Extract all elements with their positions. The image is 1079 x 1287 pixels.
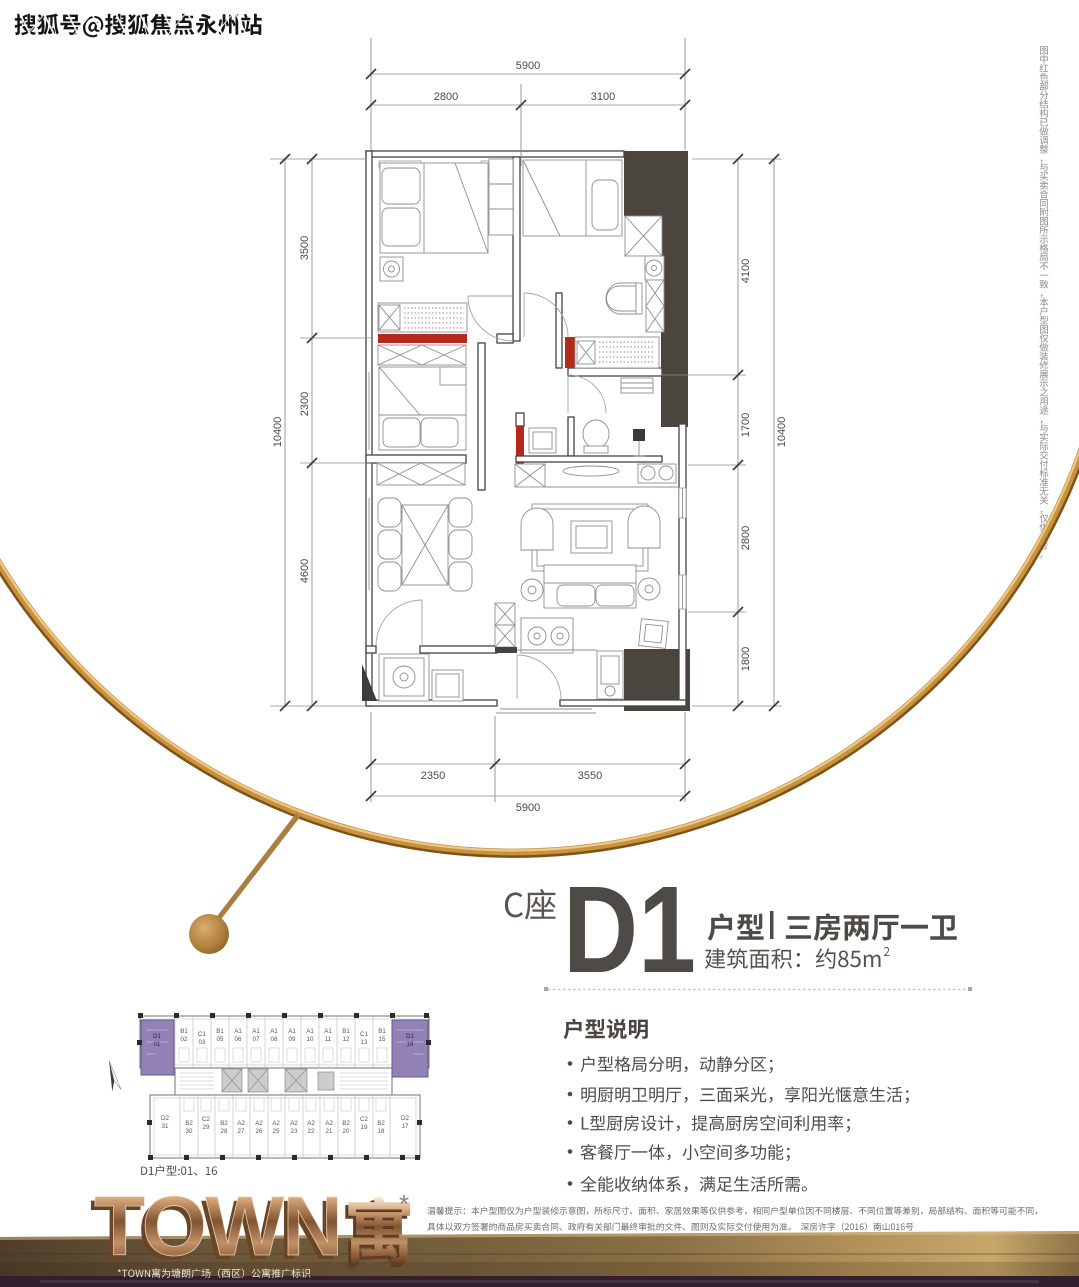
svg-text:*: * <box>399 1189 409 1219</box>
svg-text:B1: B1 <box>378 1028 386 1035</box>
svg-text:10400: 10400 <box>776 417 788 448</box>
svg-text:18: 18 <box>378 1128 385 1135</box>
svg-text:C1: C1 <box>360 1031 368 1038</box>
svg-text:B1: B1 <box>342 1028 350 1035</box>
svg-text:03: 03 <box>199 1039 206 1046</box>
svg-text:17: 17 <box>402 1123 409 1130</box>
svg-text:28: 28 <box>221 1128 228 1135</box>
svg-text:30: 30 <box>186 1128 193 1135</box>
svg-text:C2: C2 <box>360 1116 368 1123</box>
svg-text:B1: B1 <box>180 1028 188 1035</box>
svg-text:12: 12 <box>343 1036 350 1043</box>
svg-text:29: 29 <box>203 1124 210 1131</box>
svg-text:21: 21 <box>326 1128 333 1135</box>
svg-text:A2: A2 <box>272 1120 280 1127</box>
svg-text:B2: B2 <box>342 1120 350 1127</box>
svg-text:4100: 4100 <box>740 259 752 283</box>
svg-text:D2: D2 <box>161 1115 169 1122</box>
svg-text:05: 05 <box>217 1036 224 1043</box>
svg-text:02: 02 <box>181 1036 188 1043</box>
svg-text:19: 19 <box>361 1124 368 1131</box>
svg-text:09: 09 <box>289 1036 296 1043</box>
svg-text:D1: D1 <box>153 1033 161 1040</box>
svg-text:25: 25 <box>273 1128 280 1135</box>
svg-text:A1: A1 <box>288 1028 296 1035</box>
svg-text:20: 20 <box>343 1128 350 1135</box>
svg-text:D2: D2 <box>401 1115 409 1122</box>
svg-text:3550: 3550 <box>578 770 602 782</box>
svg-text:10400: 10400 <box>272 417 284 448</box>
svg-text:3100: 3100 <box>591 91 615 103</box>
svg-text:A2: A2 <box>325 1120 333 1127</box>
svg-text:D1: D1 <box>406 1033 414 1040</box>
svg-text:TOWN: TOWN <box>94 1179 341 1273</box>
svg-text:2800: 2800 <box>434 91 458 103</box>
svg-text:A1: A1 <box>252 1028 260 1035</box>
svg-text:13: 13 <box>361 1039 368 1046</box>
svg-text:31: 31 <box>162 1123 169 1130</box>
svg-text:B2: B2 <box>377 1120 385 1127</box>
svg-text:23: 23 <box>291 1128 298 1135</box>
svg-text:07: 07 <box>253 1036 260 1043</box>
svg-text:D1: D1 <box>563 862 696 999</box>
svg-text:B1: B1 <box>216 1028 224 1035</box>
svg-text:5900: 5900 <box>516 802 540 814</box>
svg-text:1800: 1800 <box>740 647 752 671</box>
svg-text:26: 26 <box>256 1128 263 1135</box>
svg-text:16: 16 <box>407 1041 414 1048</box>
svg-text:A1: A1 <box>234 1028 242 1035</box>
svg-text:A1: A1 <box>270 1028 278 1035</box>
svg-text:08: 08 <box>271 1036 278 1043</box>
svg-text:A2: A2 <box>237 1120 245 1127</box>
svg-text:A1: A1 <box>306 1028 314 1035</box>
svg-text:2800: 2800 <box>740 526 752 550</box>
svg-text:22: 22 <box>308 1128 315 1135</box>
svg-text:C2: C2 <box>202 1116 210 1123</box>
svg-text:4600: 4600 <box>299 559 311 583</box>
svg-text:10: 10 <box>307 1036 314 1043</box>
svg-text:A2: A2 <box>255 1120 263 1127</box>
svg-text:1700: 1700 <box>740 413 752 437</box>
svg-text:B2: B2 <box>220 1120 228 1127</box>
svg-text:5900: 5900 <box>516 60 540 72</box>
svg-text:01: 01 <box>154 1041 161 1048</box>
svg-text:C1: C1 <box>198 1031 206 1038</box>
svg-text:2300: 2300 <box>299 392 311 416</box>
svg-text:11: 11 <box>325 1036 332 1043</box>
svg-text:15: 15 <box>379 1036 386 1043</box>
svg-text:06: 06 <box>235 1036 242 1043</box>
svg-text:A2: A2 <box>307 1120 315 1127</box>
svg-text:A2: A2 <box>290 1120 298 1127</box>
svg-text:27: 27 <box>238 1128 245 1135</box>
svg-text:2350: 2350 <box>421 770 445 782</box>
svg-text:A1: A1 <box>324 1028 332 1035</box>
svg-text:3500: 3500 <box>299 236 311 260</box>
svg-text:B2: B2 <box>185 1120 193 1127</box>
